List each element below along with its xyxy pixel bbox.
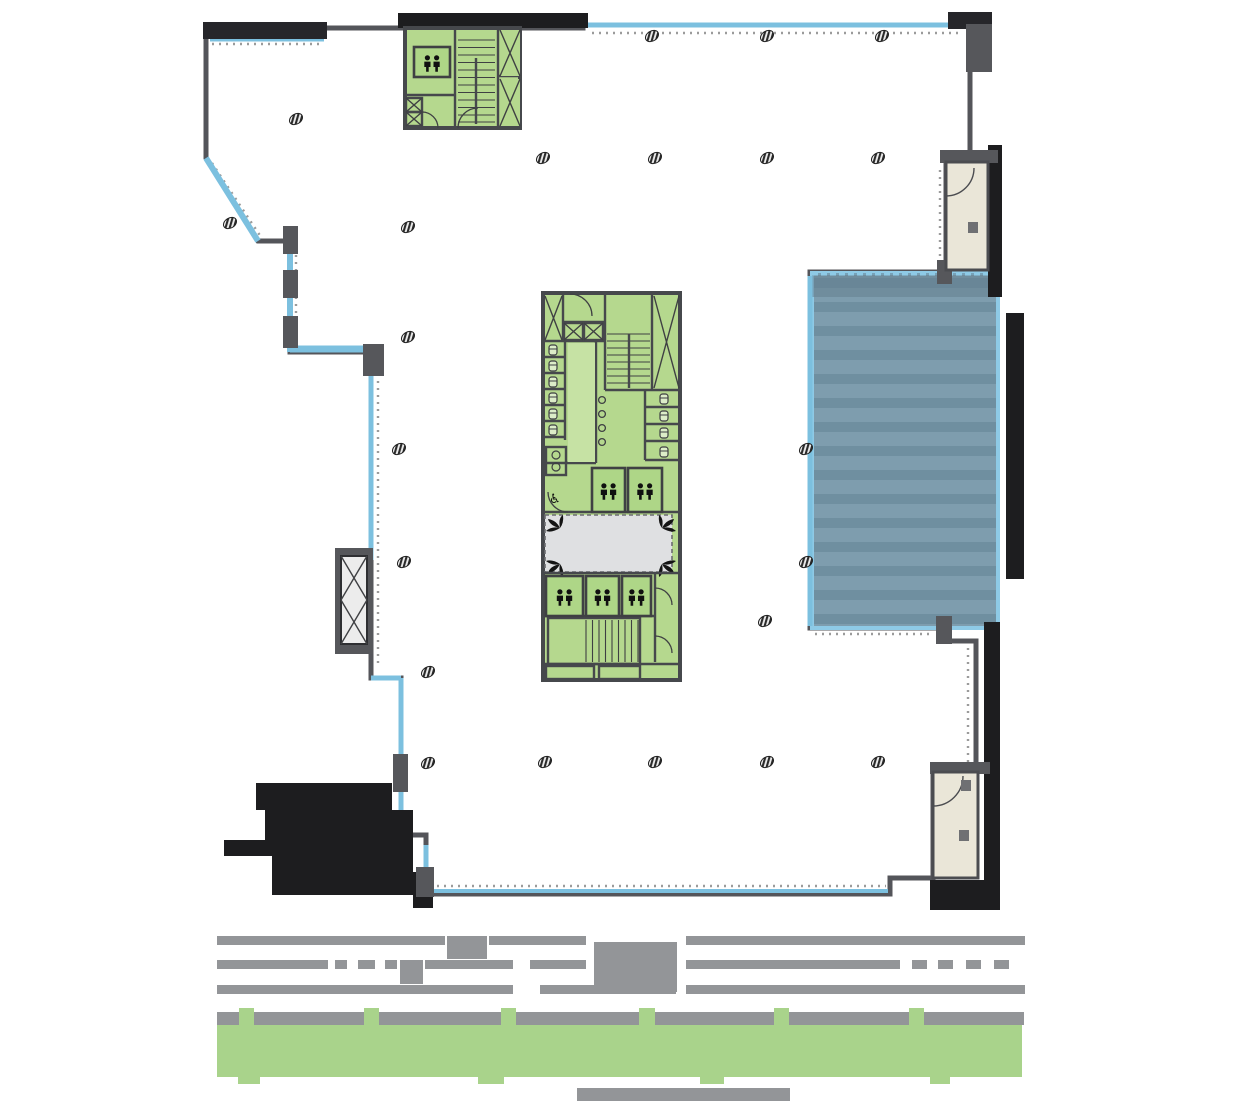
elevator-cab (592, 468, 625, 512)
redacted-text-line (686, 985, 1025, 994)
column-marker (287, 111, 304, 127)
redacted-text-line (686, 960, 900, 969)
column-marker (646, 150, 663, 166)
bottom-left-black-mass (224, 783, 413, 895)
redacted-title-ascender (909, 1008, 924, 1025)
floor-plan-drawing: ♿ (0, 0, 1248, 1120)
floor-plan-page: ♿ (0, 0, 1248, 1120)
redacted-text-block (594, 942, 677, 992)
redacted-title-band (217, 1025, 1022, 1077)
column-marker (390, 441, 407, 457)
redacted-text-line (217, 936, 445, 945)
left-shaft (335, 548, 373, 654)
redacted-title-ascender (239, 1008, 254, 1025)
redacted-text-line (530, 960, 586, 969)
redacted-title-descender (930, 1076, 950, 1084)
redacted-text-line (217, 985, 513, 994)
redacted-text-line (912, 960, 927, 969)
redacted-text-line (994, 960, 1009, 969)
column-marker (758, 754, 775, 770)
column-marker (399, 219, 416, 235)
elevator-cab (622, 576, 651, 616)
redacted-text-line (489, 936, 586, 945)
elevator-cab (586, 576, 619, 616)
redacted-text-block (447, 936, 487, 959)
redacted-title-descender (238, 1076, 260, 1084)
column-marker (221, 215, 238, 231)
balcony-bottom-right (933, 772, 978, 878)
column-marker (395, 554, 412, 570)
redacted-title-descender (700, 1076, 724, 1084)
redacted-title-descender (478, 1076, 504, 1084)
wheelchair-icon: ♿ (549, 492, 561, 507)
column-marker (758, 150, 775, 166)
redacted-text-line (217, 960, 328, 969)
redacted-text-line (385, 960, 397, 969)
elevator-lobby (545, 515, 676, 577)
redacted-title-ascender (501, 1008, 516, 1025)
redacted-title-ascender (364, 1008, 379, 1025)
column-marker (869, 754, 886, 770)
redacted-title-ascender (774, 1008, 789, 1025)
redacted-text-block (400, 960, 423, 984)
right-black-bar (1006, 313, 1024, 579)
elevator-cab (628, 468, 662, 512)
column-marker (643, 28, 660, 44)
redacted-text-line (938, 960, 953, 969)
redacted-text-line (966, 960, 981, 969)
title-block-redacted-text (217, 936, 1025, 1101)
top-left-wall-band (203, 22, 327, 39)
redacted-footer-bar (577, 1088, 790, 1101)
column-marker (873, 28, 890, 44)
column-marker (756, 613, 773, 629)
redacted-text-line (686, 936, 1025, 945)
column-marker (646, 754, 663, 770)
elevator-cab (414, 47, 450, 77)
redacted-title-ascender (639, 1008, 655, 1025)
redacted-text-line (425, 960, 513, 969)
column-marker (399, 329, 416, 345)
elevator-cab (546, 576, 583, 616)
column-marker (536, 754, 553, 770)
column-marker (758, 28, 775, 44)
core-corridor (568, 343, 595, 462)
column-marker (534, 150, 551, 166)
column-marker (419, 755, 436, 771)
redacted-text-line (358, 960, 375, 969)
terrace-void (810, 273, 998, 628)
balcony-top-right (946, 162, 988, 270)
redacted-subtitle-band (217, 1012, 1024, 1025)
top-wall-band (398, 13, 588, 28)
redacted-text-line (335, 960, 347, 969)
column-marker (419, 664, 436, 680)
column-marker (869, 150, 886, 166)
